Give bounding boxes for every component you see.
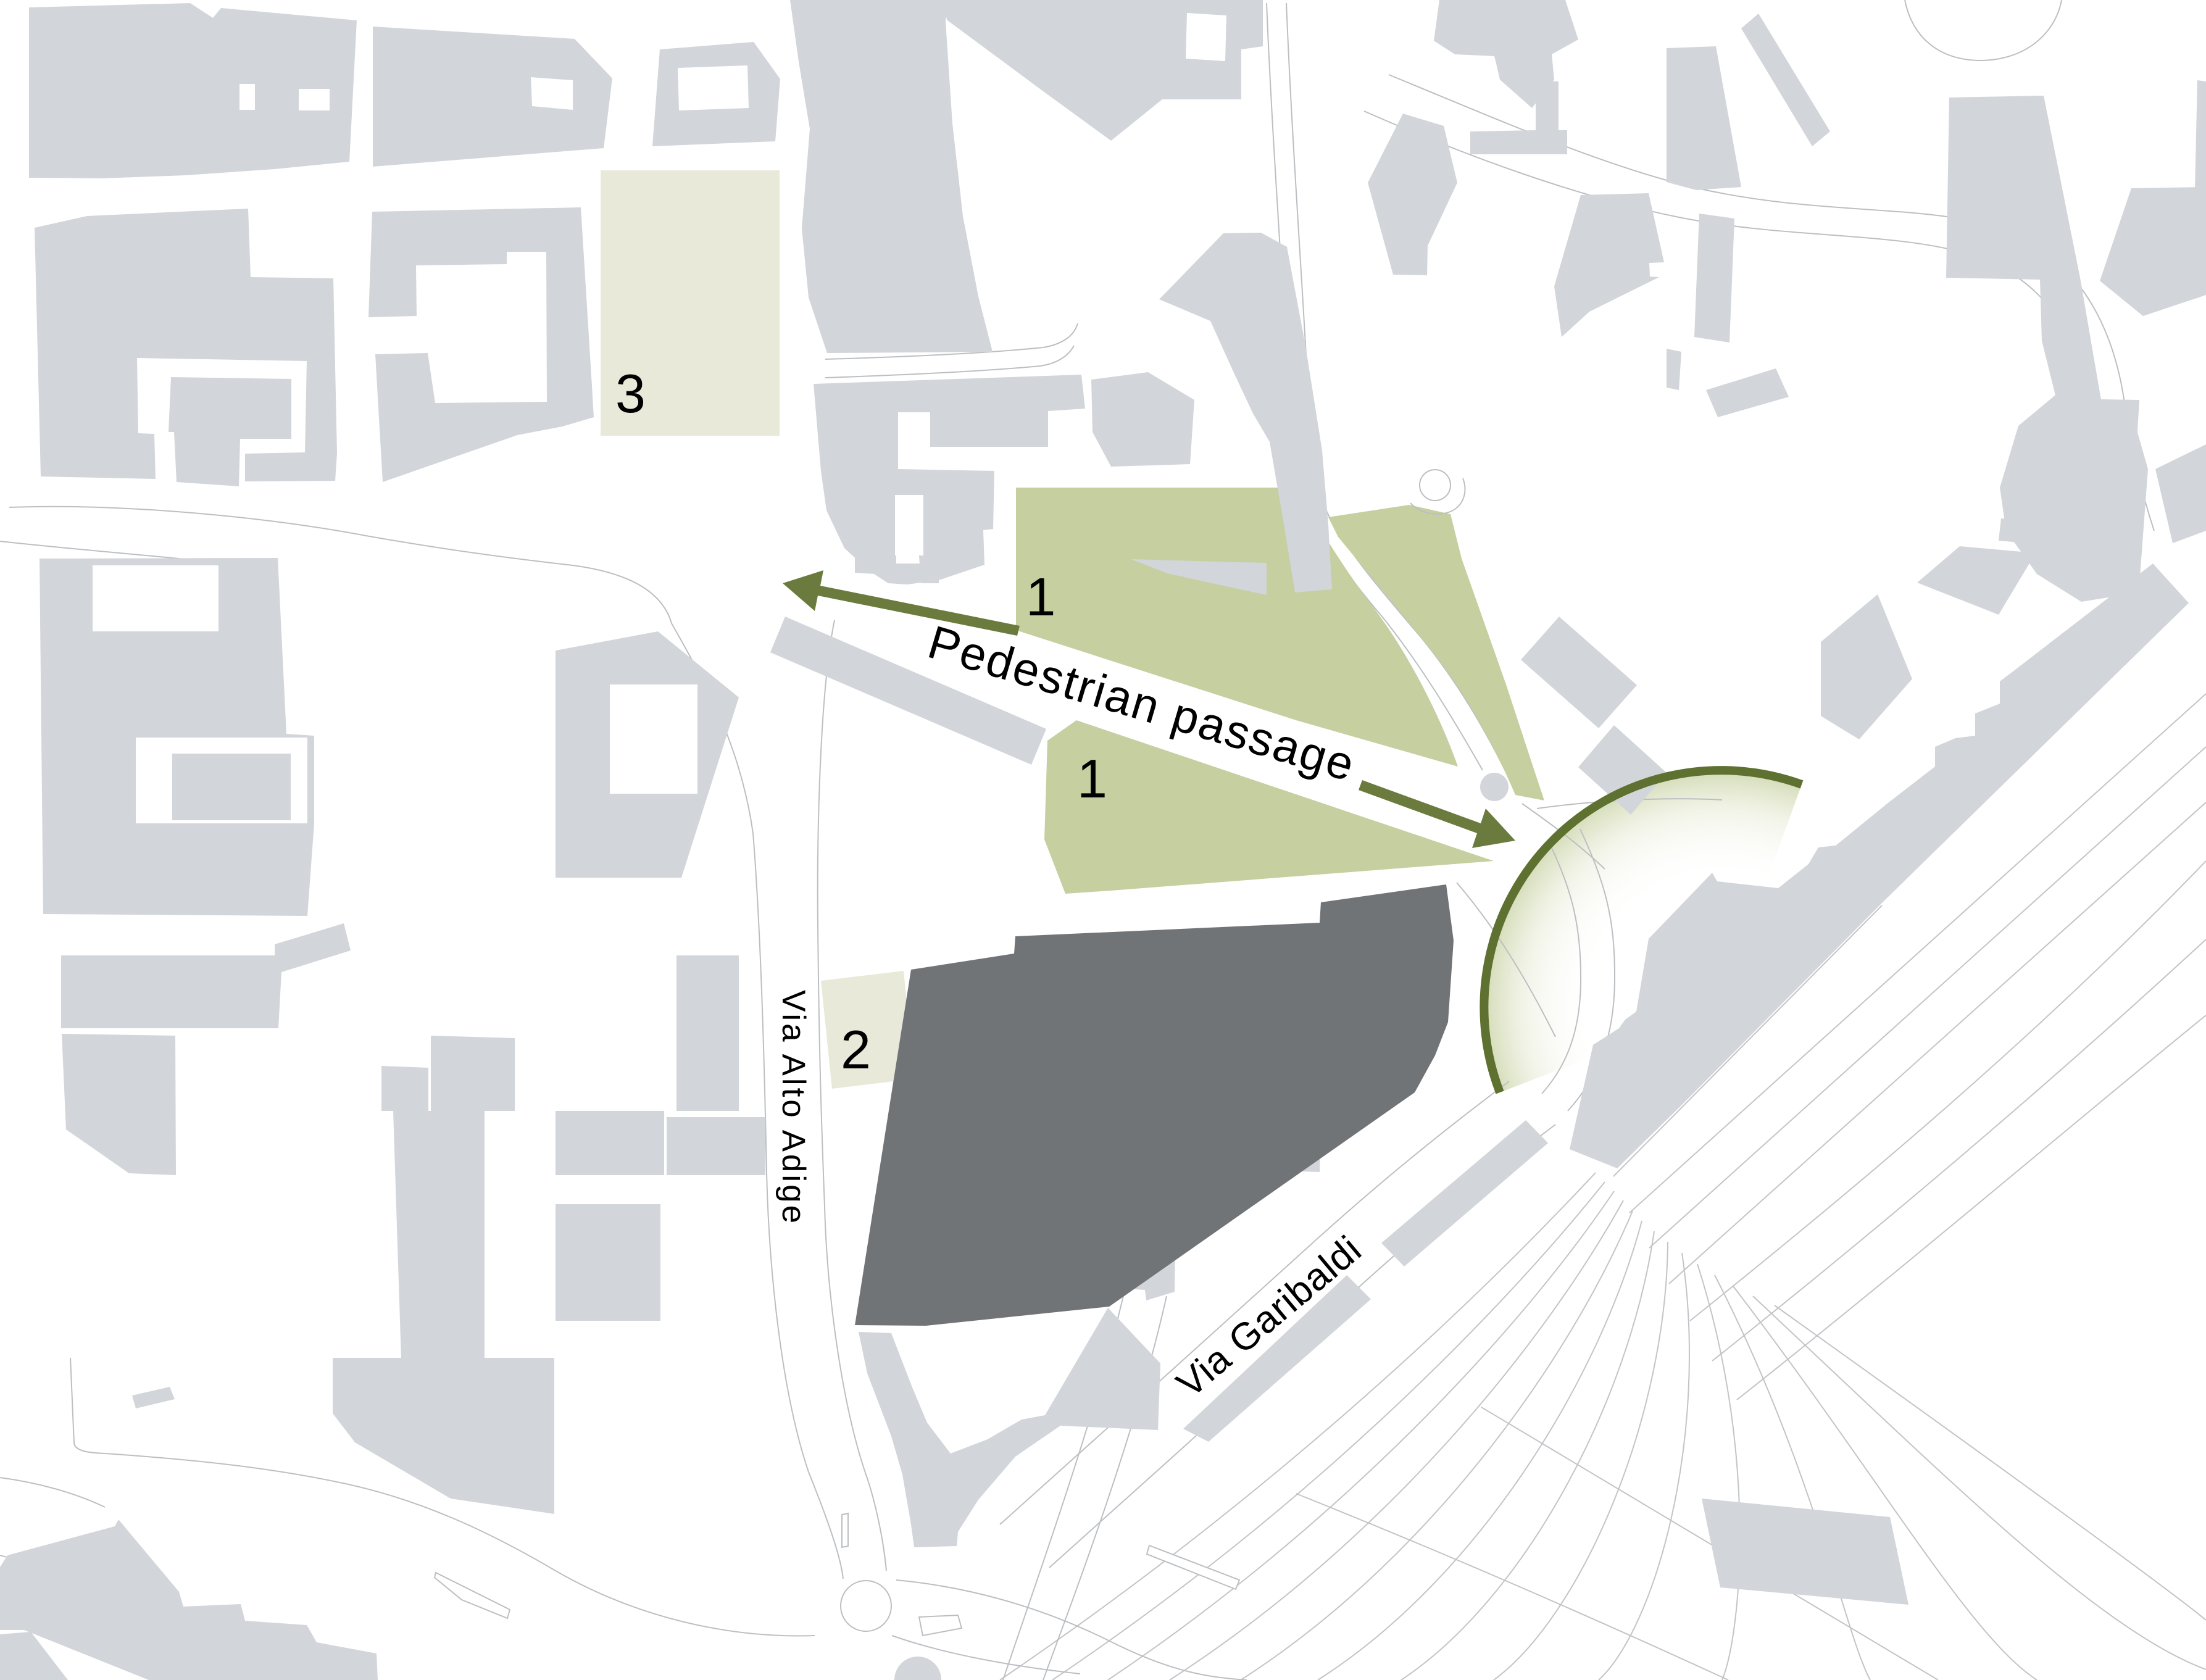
svg-text:1: 1 [1077,748,1107,809]
svg-text:3: 3 [615,363,646,424]
svg-text:2: 2 [841,1019,871,1080]
svg-text:1: 1 [1026,567,1055,627]
svg-text:Via Alto Adige: Via Alto Adige [775,990,812,1226]
